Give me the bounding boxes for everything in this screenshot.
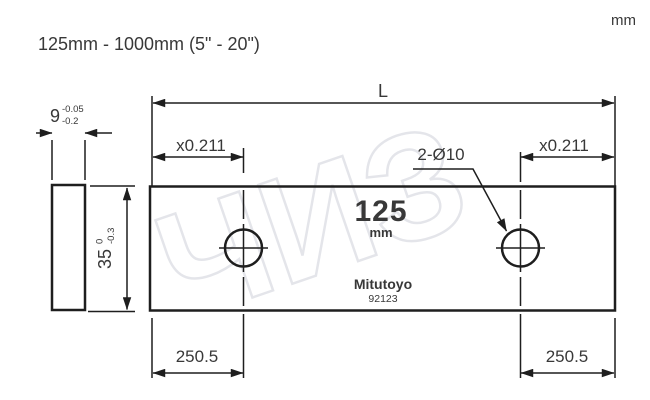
side-view-outline (52, 185, 85, 310)
thickness-tol-lower: -0.2 (62, 116, 78, 127)
right-hole-crosshair (496, 224, 545, 272)
length-dim-label: L (378, 81, 388, 101)
page-title: 125mm - 1000mm (5" - 20") (38, 34, 260, 54)
edge-to-hole-left-label: 250.5 (176, 347, 219, 366)
holes-label: 2-Ø10 (417, 145, 464, 164)
dimension-offset-left: x0.211 (153, 136, 243, 157)
offset-left-label: x0.211 (176, 136, 226, 155)
model-number: 92123 (368, 293, 397, 305)
dimension-thickness: 9 -0.05 -0.2 (36, 104, 112, 133)
unit-note: mm (611, 12, 636, 29)
dimension-edge-to-hole-left: 250.5 (153, 347, 243, 373)
dimension-edge-to-hole-right: 250.5 (521, 347, 614, 373)
height-value: 35 (95, 249, 115, 269)
block-size-unit: mm (369, 225, 392, 240)
thickness-tol-upper: -0.05 (62, 104, 84, 115)
dimension-height: 35 0 -0.3 (95, 188, 128, 310)
dimension-length: L (153, 81, 614, 103)
height-tol-upper: 0 (95, 239, 106, 244)
watermark-text: ЧИЗ (137, 91, 487, 353)
thickness-value: 9 (50, 106, 60, 126)
height-tol-lower: -0.3 (106, 228, 117, 244)
edge-to-hole-right-label: 250.5 (546, 347, 589, 366)
offset-right-label: x0.211 (539, 136, 589, 155)
technical-drawing-svg: ЧИЗ 125mm - 1000mm (5" - 20") mm L (0, 0, 650, 400)
block-size-value: 125 (354, 195, 407, 228)
brand-logo: Mitutoyo (354, 276, 412, 292)
side-view (52, 185, 85, 310)
gauge-block-drawing: ЧИЗ 125mm - 1000mm (5" - 20") mm L (0, 0, 650, 400)
dimension-offset-right: x0.211 (521, 136, 614, 157)
